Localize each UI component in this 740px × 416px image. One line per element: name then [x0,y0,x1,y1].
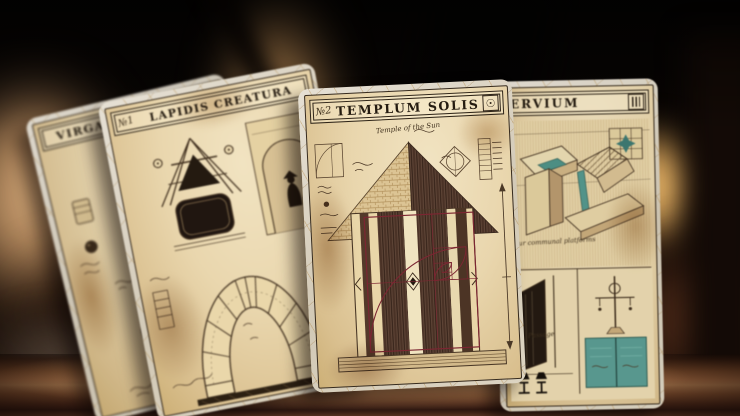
card-templum-solis: №2 TEMPLUM SOLIS ☉ [298,79,527,393]
card-drawing-area [310,118,518,384]
card-number: №1 [116,114,136,130]
card-face: №2 TEMPLUM SOLIS ☉ [304,85,522,389]
sun-icon: ☉ [482,95,499,112]
isometric-monument-drawing [504,117,656,403]
card-header: ERVIUM [505,90,649,117]
card-title: ERVIUM [510,95,625,111]
card-title: TEMPLUM SOLIS [335,96,480,118]
columns-icon [628,94,644,110]
card-product-photo: VIRGA TRITONIS [0,0,740,416]
sun-temple-drawing [310,118,518,384]
card-number: №2 [314,104,333,118]
card-drawing-area [504,117,656,403]
